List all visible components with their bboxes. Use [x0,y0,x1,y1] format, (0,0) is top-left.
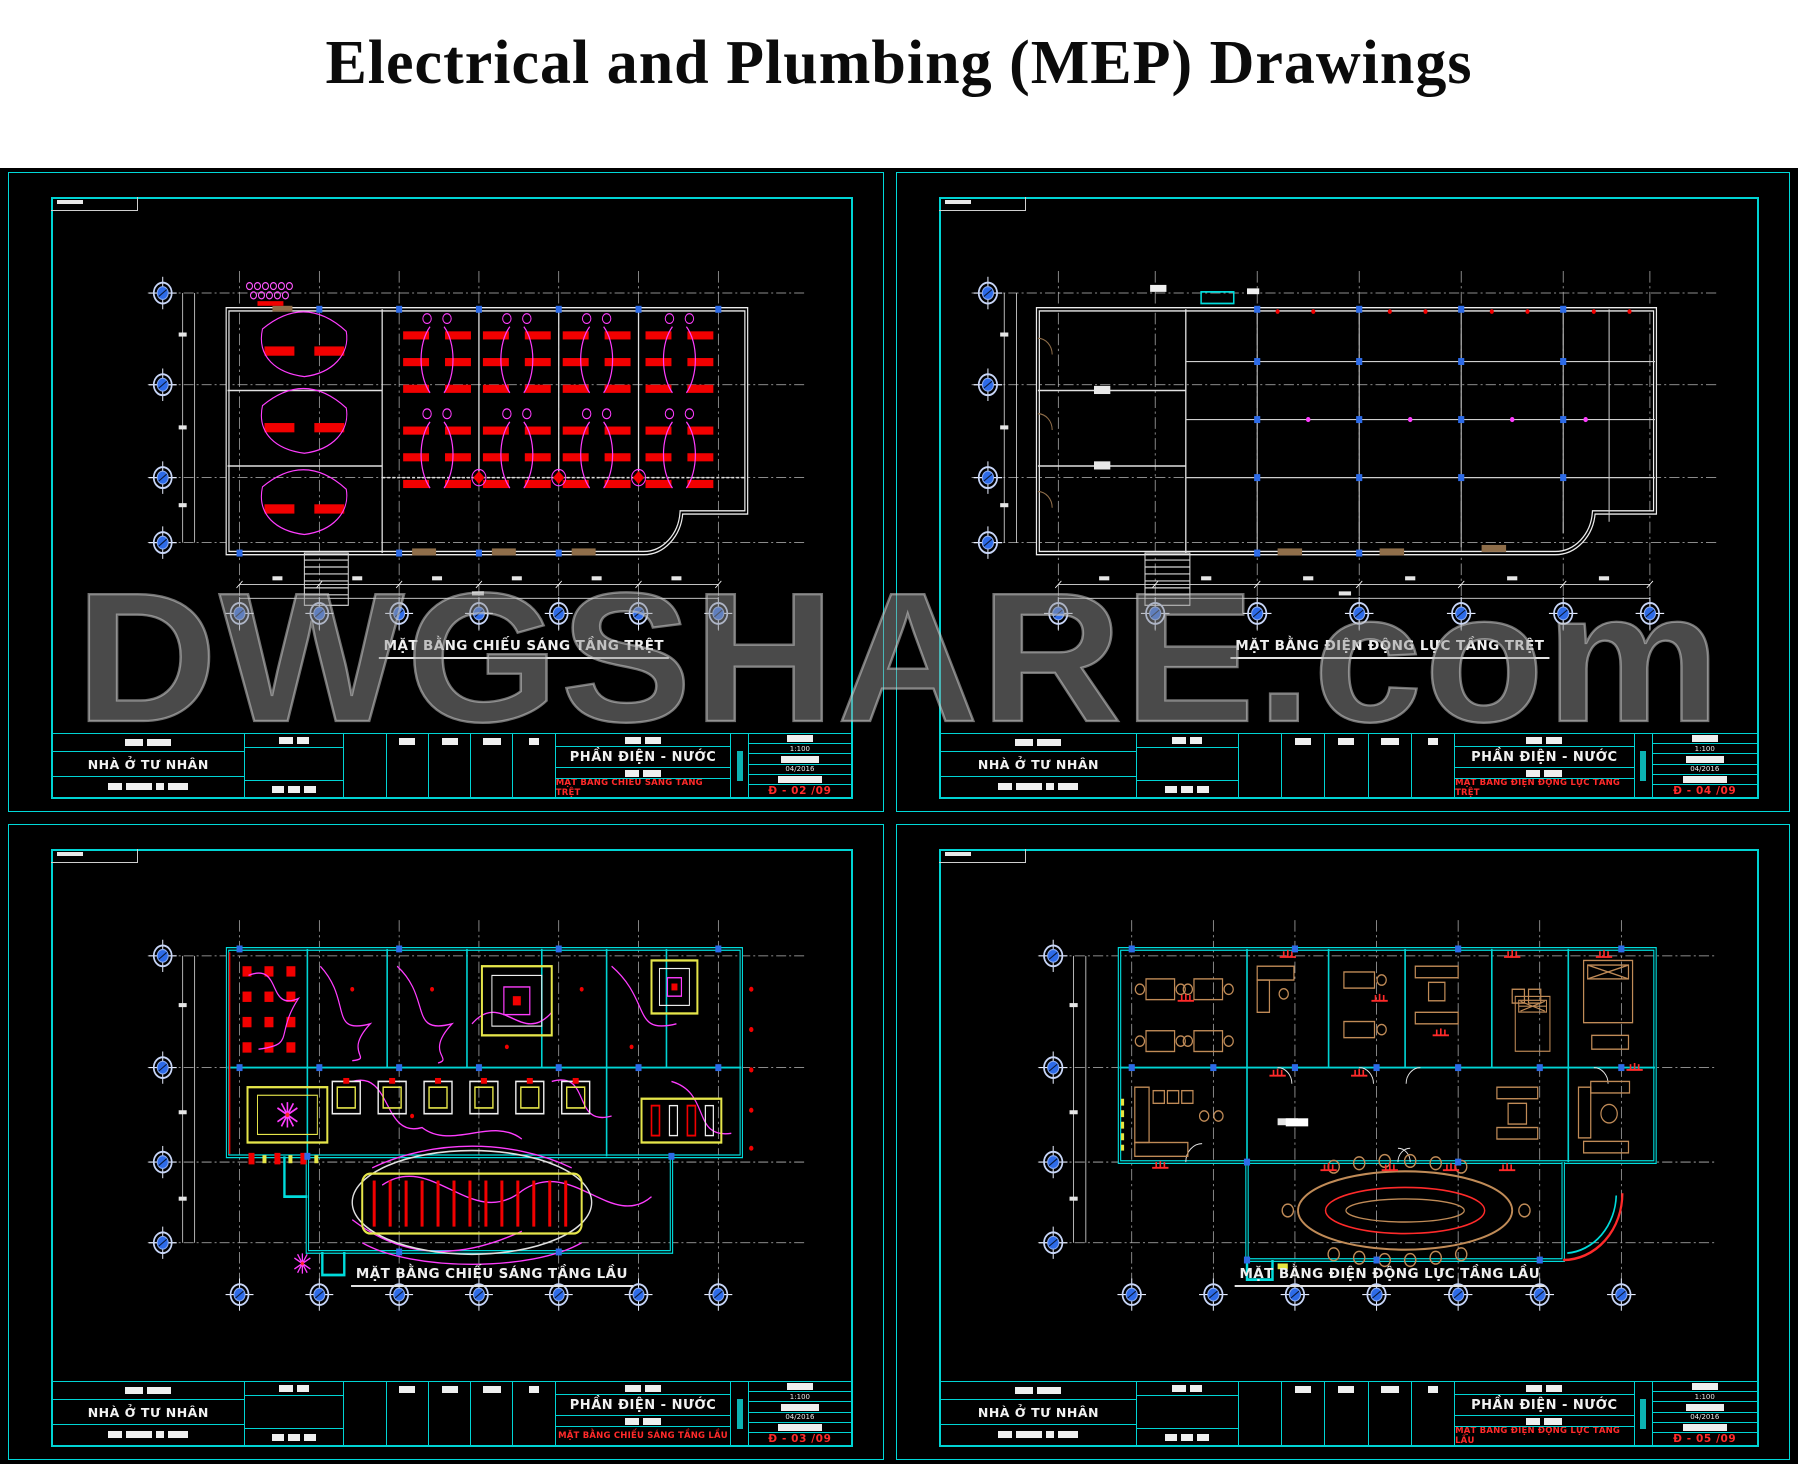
redacted-row [941,777,1136,796]
drawing-name: MẶT BẰNG CHIẾU SÁNG TẦNG TRỆT [556,779,731,797]
plan-title: MẶT BẰNG ĐIỆN ĐỘNG LỰC TẦNG TRỆT [1230,638,1549,659]
chandelier-feed [257,301,283,306]
drawing-scale: 1:100 [1653,1392,1757,1402]
drawing-scale: 1:100 [1653,744,1757,754]
signature-cell [1412,734,1454,797]
plan-title: MẶT BẰNG CHIẾU SÁNG TẦNG TRỆT [379,638,669,659]
drawing-area [53,851,851,1381]
sheet-frame: MẶT BẰNG CHIẾU SÁNG TẦNG LẦU NHÀ Ở TƯ NH… [51,849,853,1447]
title-block: NHÀ Ở TƯ NHÂN [941,733,1757,797]
signature-cell [429,1382,471,1445]
signature-cell [1239,734,1282,797]
grid-lines [148,271,806,631]
ceiling-beam-grid [1186,309,1655,553]
drawing-date: 04/2016 [1653,1413,1757,1423]
dimension-text-blobs [1000,333,1609,596]
sheet-frame: MẶT BẰNG ĐIỆN ĐỘNG LỰC TẦNG LẦU NHÀ Ở TƯ… [939,849,1759,1447]
redacted-row [556,1416,731,1427]
annex-light-fixtures [261,312,346,535]
redacted-row [245,1382,344,1396]
redacted-row [1137,781,1238,797]
title-block-stamp-cell [245,734,345,797]
bed [1515,996,1550,1051]
title-block-rotated-strip [731,734,749,797]
title-block-stamp-cell [1137,734,1239,797]
junction-markers [1254,306,1566,557]
annex-fixtures [1038,338,1110,507]
project-name: NHÀ Ở TƯ NHÂN [53,1400,244,1425]
floor-plan-lighting-upper [53,851,851,1381]
lighting-red-grid [243,966,296,1052]
interior-walls [1038,309,1186,553]
sheet-lighting-upper-floor: MẶT BẰNG CHIẾU SÁNG TẦNG LẦU NHÀ Ở TƯ NH… [8,824,884,1460]
title-block-signature-cells [344,1382,555,1445]
title-block-project-cell: NHÀ Ở TƯ NHÂN [53,734,245,797]
door-swings [1186,1068,1608,1162]
redacted-row [245,734,344,748]
stairs [304,553,348,605]
signature-cell [1282,1382,1325,1445]
lounge-sofa [1579,1081,1630,1152]
stamp-area [1137,1396,1238,1429]
section-name: PHẦN ĐIỆN - NƯỚC [1455,1395,1634,1416]
redacted-row [749,1423,851,1433]
signature-cell [344,1382,386,1445]
sheet-power-ground-floor: MẶT BẰNG ĐIỆN ĐỘNG LỰC TẦNG TRỆT NHÀ Ở T… [896,172,1790,812]
drawing-date: 04/2016 [749,1413,851,1423]
title-block-info-cell: 1:100 04/2016 Đ - 02 /09 [749,734,851,797]
plan-title: MẶT BẰNG CHIẾU SÁNG TẦNG LẦU [351,1266,633,1287]
stamp-area [245,748,344,781]
sheet-number: Đ - 04 /09 [1653,785,1757,797]
redacted-row [556,1382,731,1395]
title-block-stamp-cell [245,1382,345,1445]
recessed-light-box-small [652,960,698,1013]
redacted-row [1653,1402,1757,1412]
interior-walls [1120,949,1656,1162]
stairs [1145,553,1190,605]
title-block: NHÀ Ở TƯ NHÂN [941,1381,1757,1445]
signature-cell [1412,1382,1454,1445]
oval-ceiling-feature [352,1146,591,1264]
title-block-signature-cells [1239,734,1455,797]
bedroom-right [1584,960,1633,1049]
chandelier-symbol [247,283,293,299]
signature-cell [1239,1382,1282,1445]
redacted-row [1455,1416,1634,1427]
drawing-name: MẶT BẰNG CHIẾU SÁNG TẦNG LẦU [556,1427,731,1445]
signature-cell [1282,734,1325,797]
title-block-section-cell: PHẦN ĐIỆN - NƯỚC MẶT BẰNG CHIẾU SÁNG TẦN… [556,734,732,797]
redacted-row [1455,734,1634,747]
room-furniture [1257,966,1541,1037]
project-name: NHÀ Ở TƯ NHÂN [941,752,1136,777]
dimension-text-blobs [179,333,682,596]
grid-bubbles [974,277,1665,630]
redacted-row [245,1429,344,1445]
redacted-row [53,734,244,752]
signature-cell [513,1382,554,1445]
drawing-date: 04/2016 [749,765,851,775]
drawing-area [941,851,1757,1381]
redacted-row [941,1382,1136,1400]
redacted-row [941,734,1136,752]
redacted-row [1455,1382,1634,1395]
drawing-board: MẶT BẰNG CHIẾU SÁNG TẦNG TRỆT NHÀ Ở TƯ N… [0,168,1798,1464]
title-block-info-cell: 1:100 04/2016 Đ - 03 /09 [749,1382,851,1445]
signature-cell [429,734,471,797]
drawing-scale: 1:100 [749,744,851,754]
sheet-number: Đ - 05 /09 [1653,1433,1757,1445]
star-light-box [248,1087,328,1142]
sheet-power-upper-floor: MẶT BẰNG ĐIỆN ĐỘNG LỰC TẦNG LẦU NHÀ Ở TƯ… [896,824,1790,1460]
building-walls [1038,309,1655,553]
redacted-row [1653,734,1757,744]
redacted-row [749,734,851,744]
redacted-row [749,1402,851,1412]
project-name: NHÀ Ở TƯ NHÂN [941,1400,1136,1425]
redacted-row [556,734,731,747]
receptacle-symbols [1152,950,1643,1170]
section-name: PHẦN ĐIỆN - NƯỚC [556,747,731,768]
pendant-star [294,1253,310,1273]
reception-counter [1135,1087,1223,1156]
section-name: PHẦN ĐIỆN - NƯỚC [556,1395,731,1416]
title-block-rotated-strip [1635,1382,1653,1445]
title-block-rotated-strip [1635,734,1653,797]
stamp-area [1137,748,1238,781]
redacted-row [53,1425,244,1444]
title-block-signature-cells [1239,1382,1455,1445]
page: Electrical and Plumbing (MEP) Drawings [0,0,1798,1464]
conference-table [1298,1171,1512,1249]
redacted-row [245,781,344,797]
redacted-row [53,1382,244,1400]
redacted-row [749,775,851,785]
signature-cell [387,1382,429,1445]
signature-cell [387,734,429,797]
recessed-light-box-large [482,966,552,1035]
title-block-project-cell: NHÀ Ở TƯ NHÂN [941,1382,1137,1445]
redacted-row [941,1425,1136,1444]
redacted-row [53,777,244,796]
redacted-row [1455,768,1634,779]
title-block-info-cell: 1:100 04/2016 Đ - 05 /09 [1653,1382,1757,1445]
white-note-blob [1286,1118,1308,1126]
floor-plan-power-upper [941,851,1757,1381]
title-block-project-cell: NHÀ Ở TƯ NHÂN [53,1382,245,1445]
grid-bubbles [1039,940,1636,1311]
yellow-strip [1123,1099,1288,1270]
dimension-text-blobs [1070,1003,1298,1201]
title-block: NHÀ Ở TƯ NHÂN [53,733,851,797]
office-desks [1135,979,1233,1052]
waiting-sofa [1497,1087,1538,1139]
signature-cell [1325,734,1368,797]
redacted-row [1653,1423,1757,1433]
project-name: NHÀ Ở TƯ NHÂN [53,752,244,777]
redacted-row [1137,1382,1238,1396]
signature-cell [1325,1382,1368,1445]
redacted-row [1653,754,1757,764]
title-block-signature-cells [344,734,555,797]
signature-cell [1369,1382,1412,1445]
panel-symbol [1150,285,1259,304]
title-block-section-cell: PHẦN ĐIỆN - NƯỚC MẶT BẰNG ĐIỆN ĐỘNG LỰC … [1455,734,1635,797]
signature-cell [471,1382,513,1445]
redacted-row [1653,775,1757,785]
signature-cell [513,734,554,797]
title-block-stamp-cell [1137,1382,1239,1445]
redacted-row [749,1382,851,1392]
signature-cell [471,734,513,797]
sheet-frame: MẶT BẰNG ĐIỆN ĐỘNG LỰC TẦNG TRỆT NHÀ Ở T… [939,197,1759,799]
redacted-row [749,754,851,764]
sheet-number: Đ - 02 /09 [749,785,851,797]
drawing-name: MẶT BẰNG ĐIỆN ĐỘNG LỰC TẦNG TRỆT [1455,779,1634,797]
drawing-name: MẶT BẰNG ĐIỆN ĐỘNG LỰC TẦNG LẦU [1455,1427,1634,1445]
sheet-lighting-ground-floor: MẶT BẰNG CHIẾU SÁNG TẦNG TRỆT NHÀ Ở TƯ N… [8,172,884,812]
redacted-row [1653,1382,1757,1392]
sheet-number: Đ - 03 /09 [749,1433,851,1445]
rounded-corner-feature [1563,1193,1622,1260]
plan-title: MẶT BẰNG ĐIỆN ĐỘNG LỰC TẦNG LẦU [1234,1266,1545,1287]
title-block-section-cell: PHẦN ĐIỆN - NƯỚC MẶT BẰNG ĐIỆN ĐỘNG LỰC … [1455,1382,1635,1445]
redacted-row [556,768,731,779]
title-block-info-cell: 1:100 04/2016 Đ - 04 /09 [1653,734,1757,797]
title-block-project-cell: NHÀ Ở TƯ NHÂN [941,734,1137,797]
bar-light-box [642,1099,722,1143]
title-block-rotated-strip [731,1382,749,1445]
sheet-frame: MẶT BẰNG CHIẾU SÁNG TẦNG TRỆT NHÀ Ở TƯ N… [51,197,853,799]
signature-cell [1369,734,1412,797]
drawing-date: 04/2016 [1653,765,1757,775]
stamp-area [245,1396,344,1429]
page-title: Electrical and Plumbing (MEP) Drawings [0,28,1798,99]
drawing-scale: 1:100 [749,1392,851,1402]
section-name: PHẦN ĐIỆN - NƯỚC [1455,747,1634,768]
interior-walls [228,949,742,1156]
redacted-row [1137,1429,1238,1445]
title-block-section-cell: PHẦN ĐIỆN - NƯỚC MẶT BẰNG CHIẾU SÁNG TẦN… [556,1382,732,1445]
redacted-row [1137,734,1238,748]
grid-bubbles [149,940,733,1311]
title-block: NHÀ Ở TƯ NHÂN [53,1381,851,1445]
signature-cell [344,734,386,797]
